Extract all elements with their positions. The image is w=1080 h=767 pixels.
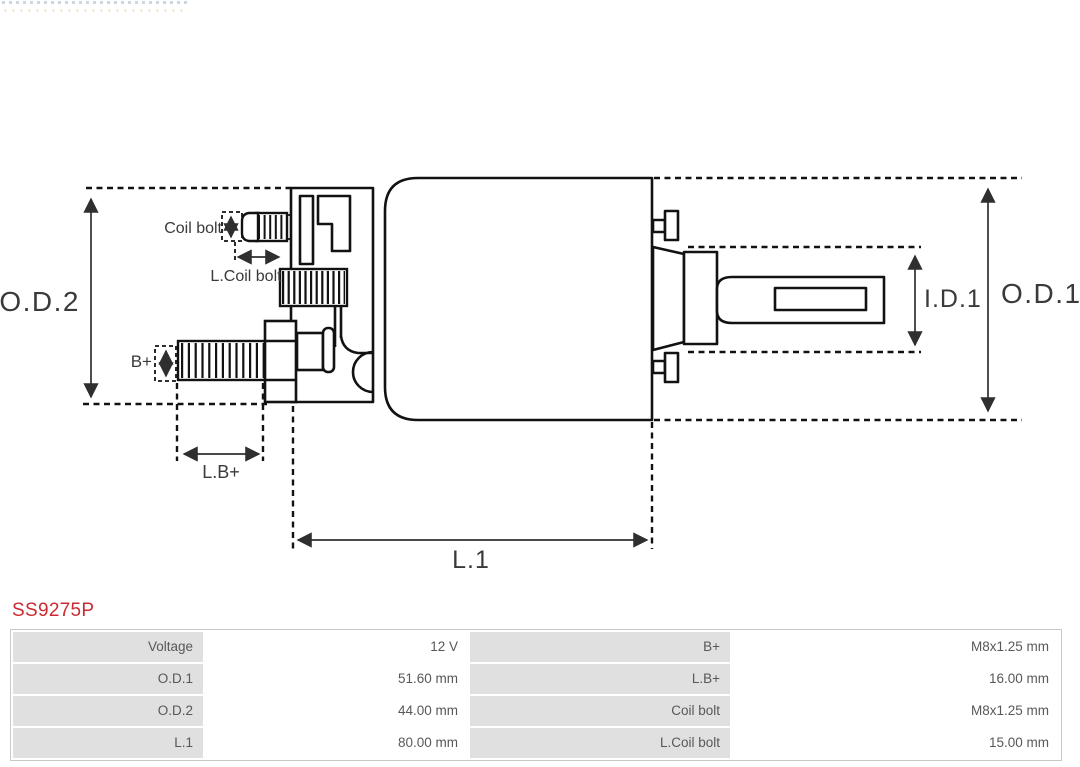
spec-value: 44.00 mm bbox=[205, 696, 468, 726]
spec-table: Voltage 12 V B+ M8x1.25 mm O.D.1 51.60 m… bbox=[10, 629, 1062, 761]
dim-label-coil-bolt: Coil bolt bbox=[164, 220, 222, 237]
dim-label-l1: L.1 bbox=[452, 546, 490, 574]
washer bbox=[323, 328, 334, 372]
spec-label: L.Coil bolt bbox=[470, 728, 730, 758]
solenoid-outline bbox=[291, 178, 884, 420]
part-number-heading: SS9275P bbox=[12, 600, 94, 622]
solenoid-main-body bbox=[385, 178, 652, 420]
plunger-shaft bbox=[717, 277, 884, 323]
dim-label-l-coil-bolt: L.Coil bolt bbox=[210, 268, 282, 285]
spec-label: O.D.2 bbox=[13, 696, 203, 726]
coil-bolt-boss bbox=[280, 269, 347, 306]
dim-label-b-plus: B+ bbox=[131, 352, 152, 371]
spec-label: Coil bolt bbox=[470, 696, 730, 726]
spec-value: 15.00 mm bbox=[732, 728, 1059, 758]
hex-nut bbox=[265, 321, 296, 402]
spec-value: 80.00 mm bbox=[205, 728, 468, 758]
product-spec-page: O.D.2 O.D.1 I.D.1 L.1 L.B+ B+ Coil bolt … bbox=[0, 0, 1080, 767]
terminal-tab-bottom bbox=[665, 353, 678, 382]
spec-label: Voltage bbox=[13, 632, 203, 662]
plunger-flange bbox=[653, 247, 684, 350]
cap-inner-strip bbox=[300, 196, 313, 264]
spec-label: L.1 bbox=[13, 728, 203, 758]
terminal-tab-top bbox=[653, 220, 665, 232]
spec-value: M8x1.25 mm bbox=[732, 696, 1059, 726]
spec-value: 12 V bbox=[205, 632, 468, 662]
solenoid-technical-drawing: O.D.2 O.D.1 I.D.1 L.1 L.B+ B+ Coil bolt … bbox=[0, 0, 1080, 596]
terminal-tab-top bbox=[665, 211, 678, 240]
spec-value: 16.00 mm bbox=[732, 664, 1059, 694]
spec-label: B+ bbox=[470, 632, 730, 662]
spec-value: 51.60 mm bbox=[205, 664, 468, 694]
dim-label-id1: I.D.1 bbox=[924, 285, 982, 313]
plunger-plate bbox=[684, 252, 717, 344]
dim-label-od1: O.D.1 bbox=[1001, 278, 1080, 309]
insulator-block bbox=[297, 333, 323, 370]
terminal-tab-bottom bbox=[653, 361, 665, 373]
spec-label: L.B+ bbox=[470, 664, 730, 694]
spec-value: M8x1.25 mm bbox=[732, 632, 1059, 662]
spec-label: O.D.1 bbox=[13, 664, 203, 694]
dim-label-od2: O.D.2 bbox=[0, 286, 80, 317]
dim-label-lb: L.B+ bbox=[202, 462, 240, 482]
coil-bolt bbox=[242, 213, 287, 241]
